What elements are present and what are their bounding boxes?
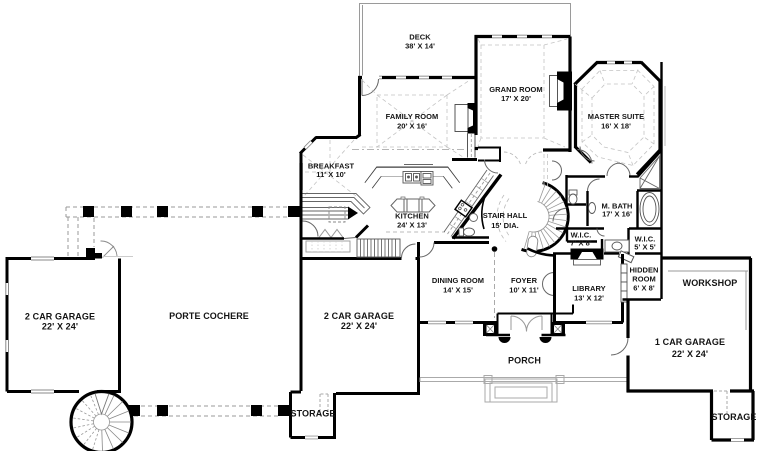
svg-text:7' X 8': 7' X 8' bbox=[570, 239, 592, 248]
svg-text:WORKSHOP: WORKSHOP bbox=[683, 278, 738, 288]
svg-text:STAIR HALL: STAIR HALL bbox=[483, 211, 528, 220]
svg-text:22' X 24': 22' X 24' bbox=[341, 321, 377, 331]
svg-text:MASTER SUITE: MASTER SUITE bbox=[588, 112, 644, 121]
svg-text:1 CAR GARAGE: 1 CAR GARAGE bbox=[655, 337, 725, 347]
svg-text:13' X 12': 13' X 12' bbox=[574, 294, 604, 303]
svg-text:GRAND ROOM: GRAND ROOM bbox=[489, 85, 542, 94]
svg-text:LIBRARY: LIBRARY bbox=[572, 284, 605, 293]
svg-text:16' X 18': 16' X 18' bbox=[601, 122, 631, 131]
svg-text:PORTE COCHERE: PORTE COCHERE bbox=[169, 311, 249, 321]
svg-text:10' X 11': 10' X 11' bbox=[509, 286, 539, 295]
svg-text:5' X 5': 5' X 5' bbox=[634, 243, 656, 252]
svg-text:2 CAR GARAGE: 2 CAR GARAGE bbox=[25, 312, 95, 322]
svg-text:6' X 8': 6' X 8' bbox=[633, 284, 655, 293]
svg-text:20' X 16': 20' X 16' bbox=[397, 122, 427, 131]
svg-text:HIDDEN: HIDDEN bbox=[629, 266, 658, 275]
svg-text:22' X 24': 22' X 24' bbox=[42, 322, 78, 332]
svg-text:FOYER: FOYER bbox=[511, 276, 538, 285]
svg-text:STORAGE: STORAGE bbox=[711, 412, 756, 422]
svg-text:ROOM: ROOM bbox=[632, 275, 656, 284]
svg-text:STORAGE: STORAGE bbox=[290, 409, 335, 419]
svg-text:38' X 14': 38' X 14' bbox=[405, 42, 435, 51]
svg-text:11' X 10': 11' X 10' bbox=[316, 170, 346, 179]
svg-text:PORCH: PORCH bbox=[508, 356, 541, 366]
svg-text:14' X 15': 14' X 15' bbox=[443, 286, 473, 295]
svg-text:17' X 20': 17' X 20' bbox=[501, 94, 531, 103]
svg-text:DINING ROOM: DINING ROOM bbox=[432, 276, 484, 285]
svg-text:22' X 24': 22' X 24' bbox=[672, 349, 708, 359]
svg-text:2 CAR GARAGE: 2 CAR GARAGE bbox=[324, 311, 394, 321]
svg-text:FAMILY ROOM: FAMILY ROOM bbox=[386, 112, 439, 121]
svg-text:24' X 13': 24' X 13' bbox=[397, 221, 427, 230]
svg-text:DECK: DECK bbox=[409, 33, 431, 42]
svg-text:17' X 16': 17' X 16' bbox=[602, 210, 632, 219]
svg-text:KITCHEN: KITCHEN bbox=[395, 212, 429, 221]
svg-text:15' DIA.: 15' DIA. bbox=[491, 221, 519, 230]
